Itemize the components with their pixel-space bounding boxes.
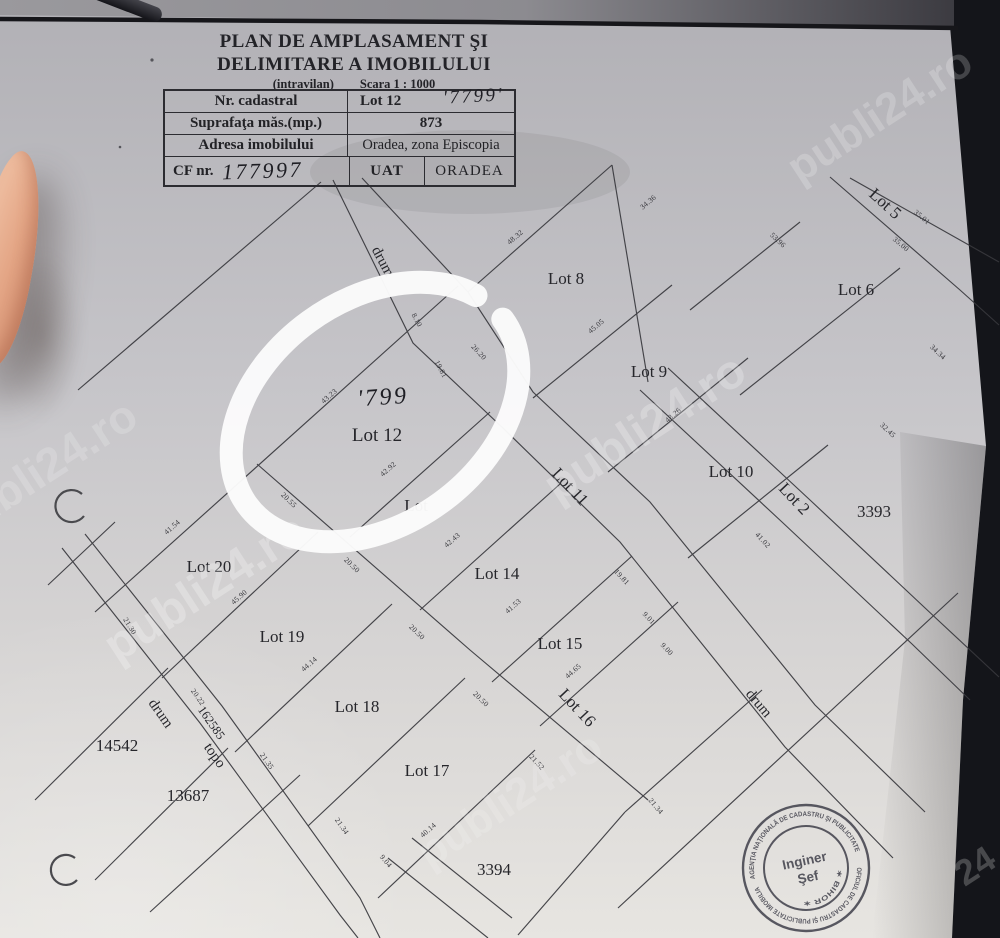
cadastral-info-table: Nr. cadastral Lot 12 '7799' Suprafaţa mă… [163,89,516,187]
cadastral-number-handwritten: '7799' [442,84,504,109]
address-label: Adresa imobilului [165,135,348,156]
cf-number-handwritten: 177997 [221,157,303,186]
cf-cell: CF nr. 177997 [165,157,350,185]
photographed-cadastral-plan: AGENŢIA NAŢIONALĂ DE CADASTRU ŞI PUBLICI… [0,0,1000,938]
surface-value: 873 [348,113,514,134]
cf-label: CF nr. [173,163,214,180]
cadastral-number-label: Nr. cadastral [165,91,348,112]
plan-title-line2: DELIMITARE A IMOBILULUI [148,53,560,76]
uat-label: UAT [350,157,425,185]
address-value: Oradea, zona Episcopia [348,135,514,156]
surface-label: Suprafaţa măs.(mp.) [165,113,348,134]
plan-title-line1: PLAN DE AMPLASAMENT ŞI [148,30,560,53]
table-row-cf: CF nr. 177997 UAT ORADEA [165,156,514,185]
table-row-surface: Suprafaţa măs.(mp.) 873 [165,112,514,134]
cadastral-lot-value: Lot 12 [360,93,401,110]
table-row-address: Adresa imobilului Oradea, zona Episcopia [165,134,514,156]
uat-value: ORADEA [425,157,514,185]
table-row-cadastral-number: Nr. cadastral Lot 12 '7799' [165,91,514,112]
cadastral-number-cell: Lot 12 '7799' [348,91,514,112]
plan-title-block: PLAN DE AMPLASAMENT ŞI DELIMITARE A IMOB… [148,30,560,92]
